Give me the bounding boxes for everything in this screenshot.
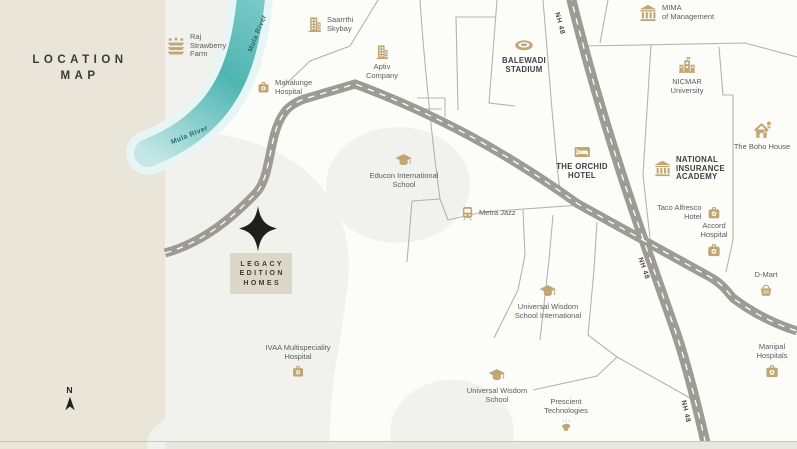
hospital-kit-icon bbox=[763, 363, 780, 380]
poi-the-orchid-hotel: THE ORCHIDHOTEL bbox=[556, 144, 608, 180]
poi-taco-alfresco-hotel: Taco AlfrescoHotel bbox=[657, 204, 722, 221]
bag-icon bbox=[706, 205, 722, 221]
university-icon bbox=[678, 56, 697, 75]
poi-balewadi-stadium: BALEWADISTADIUM bbox=[502, 35, 546, 74]
poi-nicmar-university: NICMARUniversity bbox=[671, 56, 704, 95]
tech-icon bbox=[559, 418, 573, 432]
north-arrow-icon bbox=[63, 395, 77, 412]
graduation-cap-icon bbox=[487, 367, 507, 384]
compass: N bbox=[56, 386, 84, 417]
poi-educon-international-school: Educon InternationalSchool bbox=[370, 152, 439, 189]
hospital-kit-icon bbox=[256, 80, 271, 95]
poi-ivaa-multispeciality-hospital: IVAA MultispecialityHospital bbox=[266, 344, 331, 379]
institute-icon bbox=[638, 3, 658, 23]
poi-prescient-technologies: PrescientTechnologies bbox=[544, 398, 588, 432]
poi-universal-wisdom-school: Universal WisdomSchool bbox=[467, 367, 527, 404]
poi-mahalunge-hospital: MahalungeHospital bbox=[256, 79, 312, 96]
project-label-line2: EDITION bbox=[230, 269, 292, 278]
poi-accord-hospital: AccordHospital bbox=[700, 222, 727, 259]
hospital-kit-icon bbox=[705, 242, 722, 259]
institute-icon bbox=[653, 159, 672, 178]
farm-icon bbox=[166, 36, 186, 56]
building-icon bbox=[306, 16, 323, 33]
house-icon bbox=[751, 119, 772, 140]
basket-icon bbox=[758, 283, 773, 298]
poi-raj-strawberry-farm: RajStrawberryFarm bbox=[166, 33, 226, 59]
graduation-cap-icon bbox=[394, 152, 414, 169]
project-label-line3: HOMES bbox=[230, 279, 292, 288]
poi-mima-of-management: MIMAof Management bbox=[638, 3, 714, 23]
poi-national-insurance-academy: NATIONALINSURANCEACADEMY bbox=[653, 156, 725, 182]
hospital-kit-icon bbox=[290, 364, 305, 379]
poi-d-mart: D-Mart bbox=[755, 271, 778, 298]
metro-icon bbox=[460, 206, 475, 221]
building-icon bbox=[374, 44, 390, 60]
poi-saarrthi-skybay: SaarrthiSkybay bbox=[306, 16, 353, 33]
project-label: LEGACY EDITION HOMES bbox=[230, 253, 292, 294]
stadium-icon bbox=[512, 35, 536, 54]
compass-north-label: N bbox=[56, 386, 84, 395]
graduation-cap-icon bbox=[538, 283, 558, 300]
poi-aptiv-company: AptivCompany bbox=[366, 44, 398, 80]
bed-icon bbox=[571, 144, 593, 160]
poi-metra-jazz: Metra Jazz bbox=[460, 206, 516, 221]
poi-manipal-hospitals: ManipalHospitals bbox=[757, 343, 788, 380]
bottom-strip bbox=[165, 442, 797, 449]
project-label-line1: LEGACY bbox=[230, 260, 292, 269]
poi-the-boho-house: The Boho House bbox=[734, 119, 790, 152]
poi-universal-wisdom-school-international: Universal WisdomSchool International bbox=[515, 283, 581, 320]
location-map-page: LOCATION MAP bbox=[0, 0, 797, 449]
